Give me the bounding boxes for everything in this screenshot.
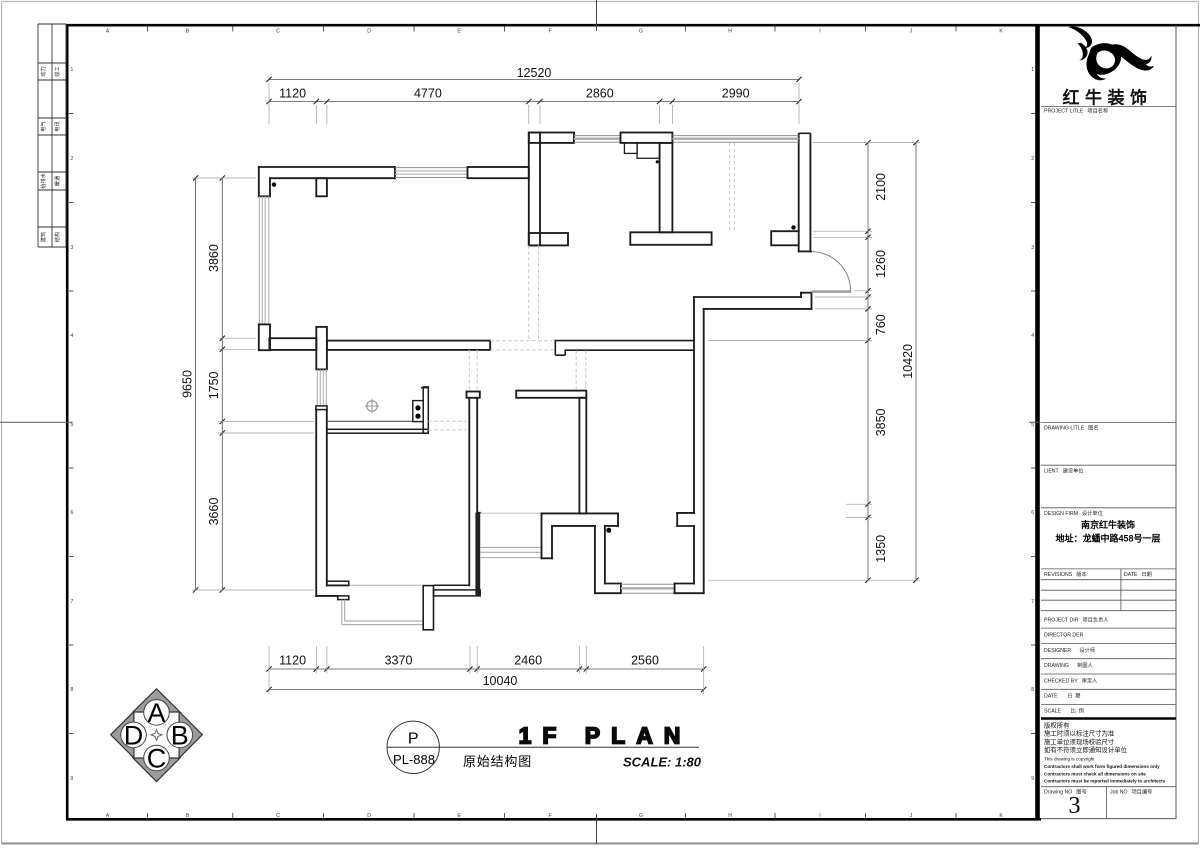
svg-text:DESIGNER 设计师: DESIGNER 设计师: [1044, 646, 1095, 654]
svg-text:DATE 日 期: DATE 日 期: [1044, 693, 1080, 700]
svg-text:版权所有: 版权所有: [1044, 721, 1070, 730]
svg-text:C: C: [276, 813, 280, 819]
svg-text:2860: 2860: [586, 87, 614, 101]
svg-text:P: P: [408, 731, 419, 748]
svg-text:3850: 3850: [874, 408, 888, 436]
svg-text:3370: 3370: [385, 654, 413, 668]
svg-text:6: 6: [71, 510, 74, 516]
svg-text:PL-888: PL-888: [393, 752, 435, 767]
svg-text:1: 1: [71, 67, 74, 73]
svg-text:3860: 3860: [207, 244, 221, 272]
svg-text:1: 1: [1031, 67, 1034, 73]
svg-text:DIRECTOR DER: DIRECTOR DER: [1044, 633, 1084, 639]
svg-text:9: 9: [71, 776, 74, 782]
svg-text:Contractors must check all dim: Contractors must check all dimensions on…: [1044, 771, 1146, 776]
svg-text:H: H: [728, 29, 732, 35]
svg-text:7: 7: [71, 599, 74, 605]
svg-text:1120: 1120: [279, 87, 306, 101]
svg-text:DRAWING 制图人: DRAWING 制图人: [1044, 661, 1093, 669]
svg-text:3: 3: [71, 245, 74, 251]
svg-text:1F PLAN: 1F PLAN: [519, 723, 692, 749]
svg-text:4: 4: [71, 333, 74, 339]
svg-text:12520: 12520: [517, 66, 552, 80]
svg-text:7: 7: [1031, 599, 1034, 605]
svg-text:地址：龙蟠中路458号一层: 地址：龙蟠中路458号一层: [1055, 533, 1160, 544]
svg-text:DRAWING LITLE图名: DRAWING LITLE图名: [1044, 424, 1099, 432]
svg-text:2990: 2990: [722, 87, 750, 101]
svg-text:4770: 4770: [414, 87, 442, 101]
svg-text:10420: 10420: [901, 344, 915, 379]
svg-text:G: G: [639, 813, 643, 819]
svg-text:暖通: 暖通: [53, 175, 61, 186]
svg-text:动力: 动力: [39, 66, 47, 76]
svg-text:C: C: [147, 744, 167, 774]
svg-text:1750: 1750: [207, 371, 221, 399]
svg-text:竣工: 竣工: [53, 66, 61, 76]
svg-text:9: 9: [1031, 776, 1034, 782]
svg-text:2100: 2100: [874, 173, 888, 201]
svg-text:2560: 2560: [631, 654, 659, 668]
svg-text:电气: 电气: [39, 121, 47, 131]
svg-text:This drawing is copyright: This drawing is copyright: [1044, 757, 1095, 762]
svg-text:1350: 1350: [874, 535, 888, 563]
svg-text:760: 760: [874, 314, 888, 335]
svg-text:C: C: [276, 29, 280, 35]
svg-text:1120: 1120: [279, 654, 306, 668]
svg-text:PROJECT LITLE项目名称: PROJECT LITLE项目名称: [1044, 107, 1108, 115]
svg-text:B: B: [171, 721, 189, 751]
svg-text:10040: 10040: [483, 674, 518, 688]
svg-text:3: 3: [1069, 793, 1081, 819]
svg-text:PROJECT DIR项目负责人: PROJECT DIR项目负责人: [1044, 616, 1108, 624]
svg-text:2: 2: [71, 156, 74, 162]
svg-text:红牛装饰: 红牛装饰: [1063, 88, 1153, 108]
svg-text:如有不符须立即通知设计单位: 如有不符须立即通知设计单位: [1044, 745, 1128, 754]
svg-text:8: 8: [1031, 687, 1034, 693]
svg-text:3660: 3660: [207, 498, 221, 526]
svg-text:8: 8: [71, 687, 74, 693]
svg-text:A: A: [147, 698, 165, 728]
svg-text:LIENT建设单位: LIENT建设单位: [1044, 467, 1083, 475]
svg-text:SCALE: 1:80: SCALE: 1:80: [623, 755, 702, 770]
svg-text:F: F: [548, 29, 551, 35]
svg-text:1260: 1260: [874, 250, 888, 278]
svg-text:F: F: [548, 813, 551, 819]
svg-text:DESIGN FIRM设计单位: DESIGN FIRM设计单位: [1044, 509, 1103, 517]
svg-text:3: 3: [1031, 245, 1034, 251]
svg-text:Contractors shall work form fi: Contractors shall work form figured dime…: [1044, 764, 1160, 769]
svg-text:原始结构图: 原始结构图: [463, 754, 532, 769]
svg-text:电讯: 电讯: [53, 121, 61, 132]
svg-text:南京红牛装饰: 南京红牛装饰: [1081, 519, 1135, 530]
svg-text:I: I: [819, 29, 820, 35]
svg-text:建筑: 建筑: [39, 231, 47, 242]
svg-text:2: 2: [1031, 156, 1034, 162]
svg-text:给排水: 给排水: [39, 172, 47, 188]
svg-text:4: 4: [1031, 333, 1034, 339]
svg-text:结构: 结构: [53, 232, 61, 242]
svg-text:5: 5: [71, 422, 74, 428]
svg-text:Job NO项目编号: Job NO项目编号: [1110, 788, 1152, 796]
svg-text:D: D: [367, 29, 371, 35]
svg-text:D: D: [367, 813, 371, 819]
svg-text:6: 6: [1031, 510, 1034, 516]
svg-text:2460: 2460: [514, 654, 542, 668]
svg-text:5: 5: [1031, 422, 1034, 428]
svg-text:I: I: [819, 813, 820, 819]
svg-text:D: D: [124, 721, 144, 751]
svg-text:H: H: [728, 813, 732, 819]
svg-text:G: G: [639, 29, 643, 35]
svg-text:REVISIONS版本: REVISIONS版本: [1044, 570, 1087, 578]
svg-text:9650: 9650: [180, 370, 194, 398]
svg-text:CHECKED BY审定人: CHECKED BY审定人: [1044, 677, 1097, 685]
svg-text:施工单位须现场校验尺寸: 施工单位须现场校验尺寸: [1044, 737, 1115, 746]
svg-text:Contractors must be reported i: Contractors must be reported immediately…: [1044, 779, 1166, 784]
svg-text:施工时须以标注尺寸为准: 施工时须以标注尺寸为准: [1044, 729, 1115, 738]
